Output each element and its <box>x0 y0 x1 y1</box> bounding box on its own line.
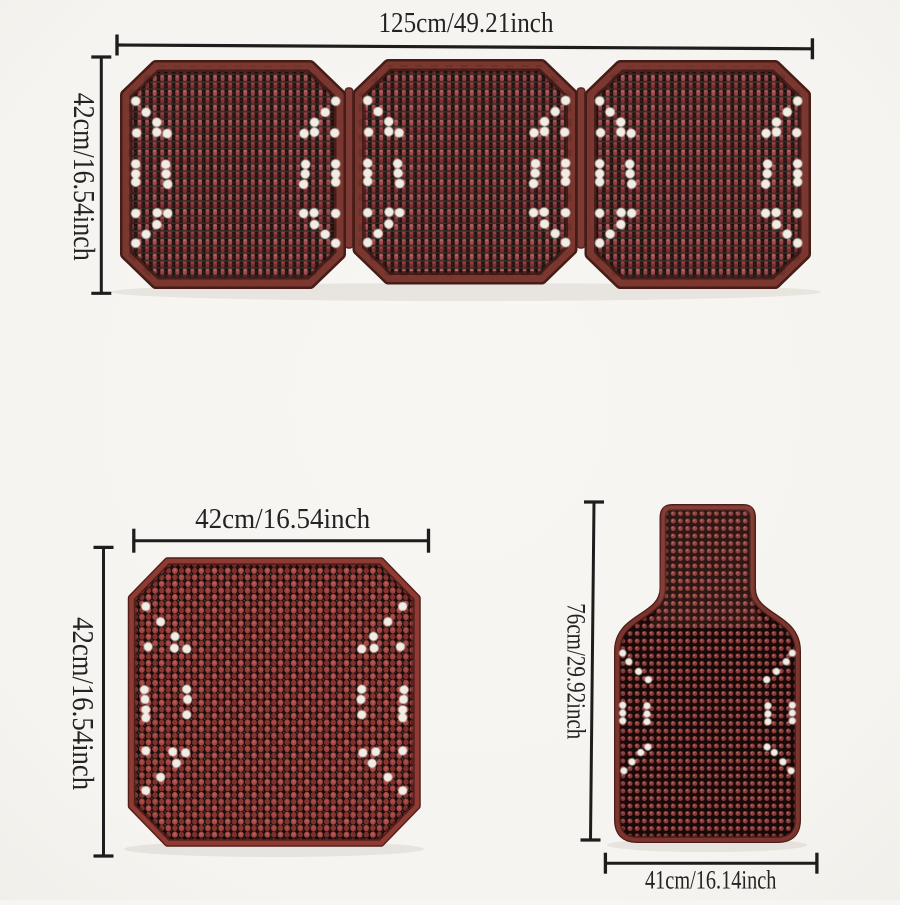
svg-text:125cm/49.21inch: 125cm/49.21inch <box>379 7 554 39</box>
svg-text:41cm/16.14inch: 41cm/16.14inch <box>645 865 776 894</box>
svg-text:42cm/16.54inch: 42cm/16.54inch <box>195 503 370 535</box>
svg-text:42cm/16.54inch: 42cm/16.54inch <box>67 93 102 261</box>
svg-text:76cm/29.92inch: 76cm/29.92inch <box>562 603 591 739</box>
svg-text:42cm/16.54inch: 42cm/16.54inch <box>66 617 101 790</box>
